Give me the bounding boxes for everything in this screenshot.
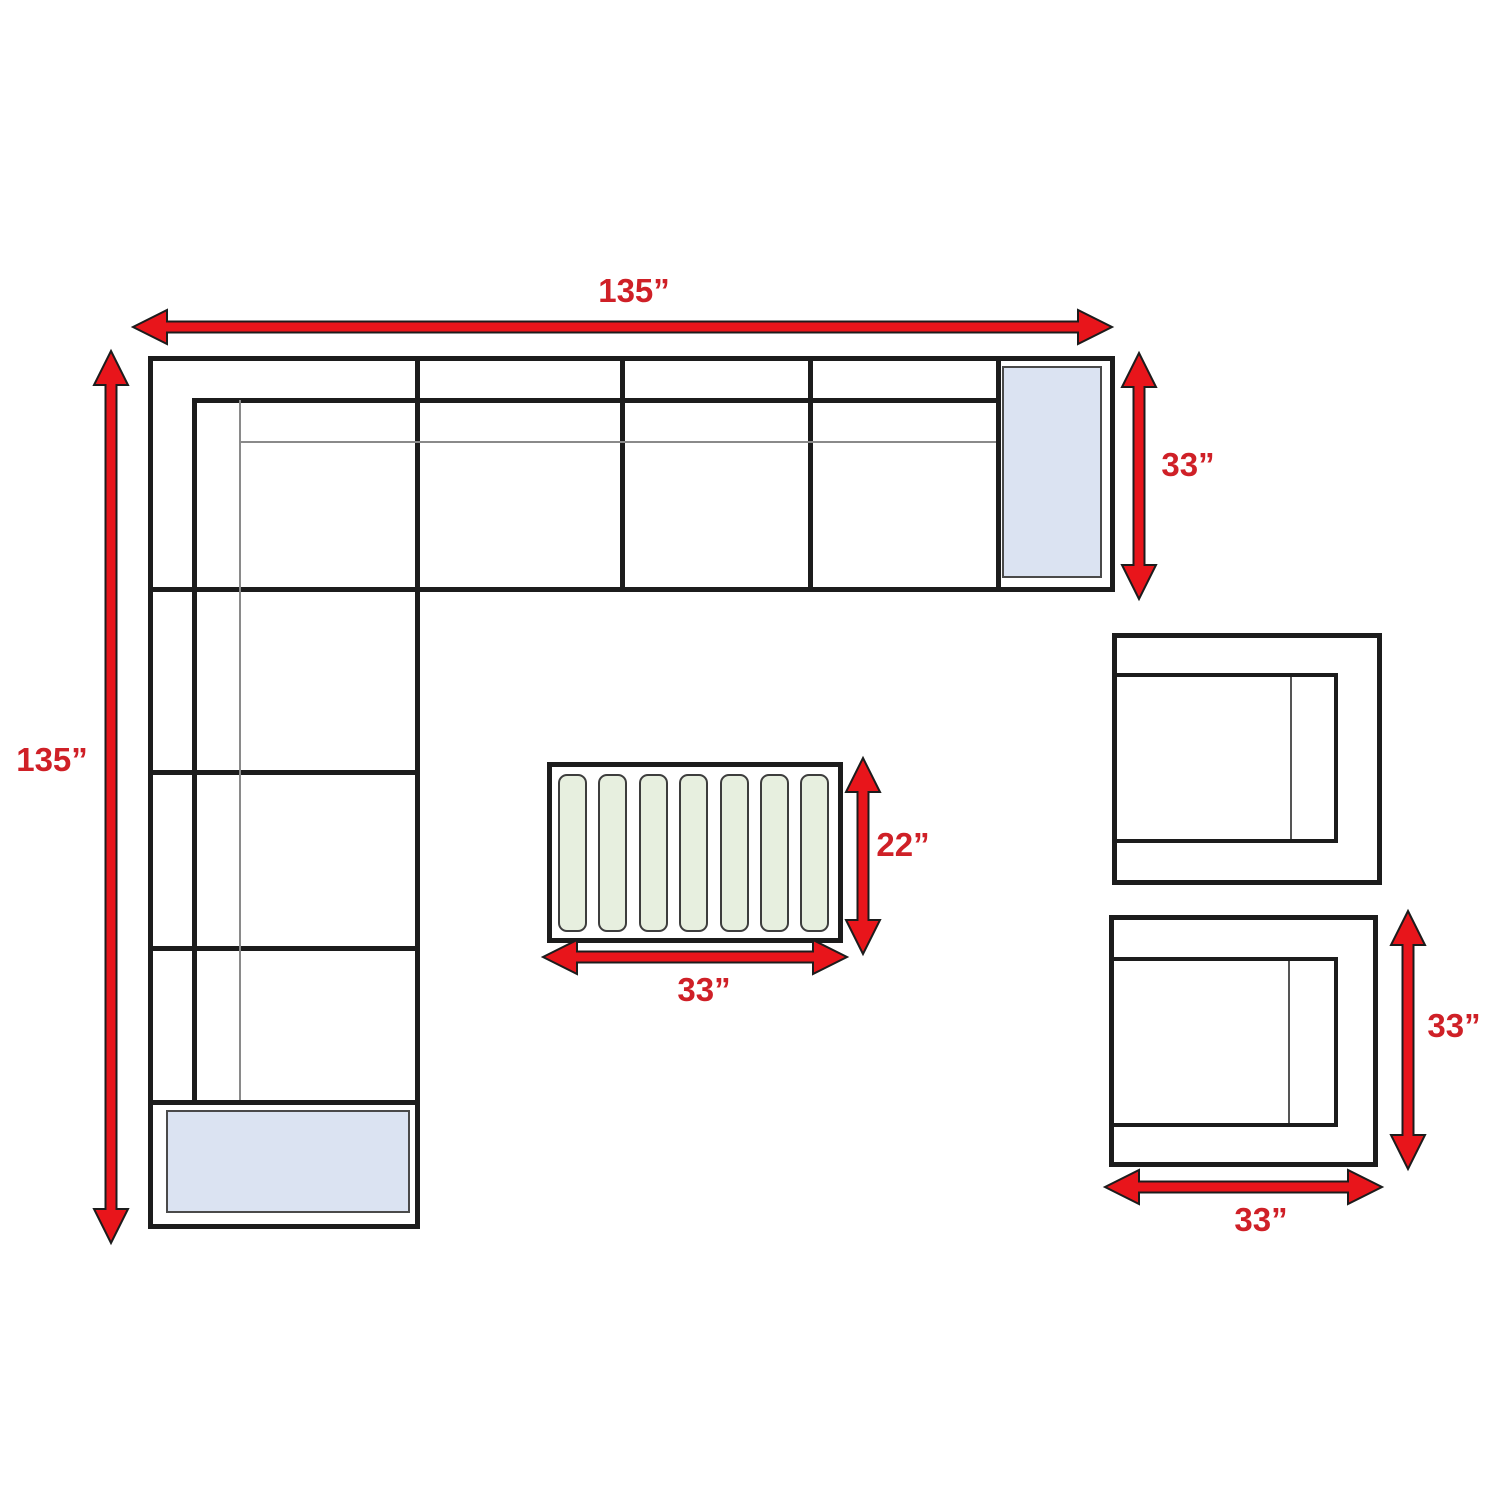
chair-depth-label: 33” <box>1427 1007 1480 1045</box>
chair-width-label: 33” <box>1234 1201 1287 1239</box>
backrest-line-vertical <box>192 398 197 1100</box>
sectional-left-column <box>148 356 420 1229</box>
chair2-seat <box>1109 957 1338 1127</box>
chair-depth-arrow <box>1390 911 1426 1169</box>
table-slat <box>760 774 789 932</box>
seat-divider <box>620 356 625 592</box>
cushion-line-horizontal <box>239 441 996 443</box>
floorplan-canvas: 135” 135” 33” 22” 33” 33” 33” <box>0 0 1500 1500</box>
sectional-height-label: 135” <box>16 741 88 779</box>
seat-divider <box>996 356 1001 592</box>
seat-divider <box>148 946 420 951</box>
table-width-label: 33” <box>677 971 730 1009</box>
chair2-cushion-line <box>1288 961 1290 1123</box>
sectional-width-label: 135” <box>598 272 670 310</box>
backrest-line-horizontal <box>192 398 996 403</box>
end-table-bottom-left <box>166 1110 410 1213</box>
sectional-depth-arrow <box>1121 353 1157 599</box>
table-slat <box>558 774 587 932</box>
chair1-seat <box>1112 673 1338 843</box>
table-slat <box>720 774 749 932</box>
seat-divider <box>148 770 420 775</box>
sectional-depth-label: 33” <box>1161 446 1214 484</box>
end-table-top-right <box>1002 366 1102 578</box>
chair-width-arrow <box>1105 1169 1382 1205</box>
table-depth-label: 22” <box>876 826 929 864</box>
table-slat <box>679 774 708 932</box>
coffee-table <box>547 762 843 943</box>
sectional-width-arrow <box>133 309 1112 345</box>
table-slat <box>598 774 627 932</box>
sectional-height-arrow <box>93 351 129 1243</box>
seat-divider <box>148 1100 420 1105</box>
table-width-arrow <box>543 939 847 975</box>
cushion-line-vertical <box>239 400 241 1100</box>
table-slat <box>800 774 829 932</box>
seat-divider <box>808 356 813 592</box>
chair1-cushion-line <box>1290 677 1292 839</box>
table-slat <box>639 774 668 932</box>
